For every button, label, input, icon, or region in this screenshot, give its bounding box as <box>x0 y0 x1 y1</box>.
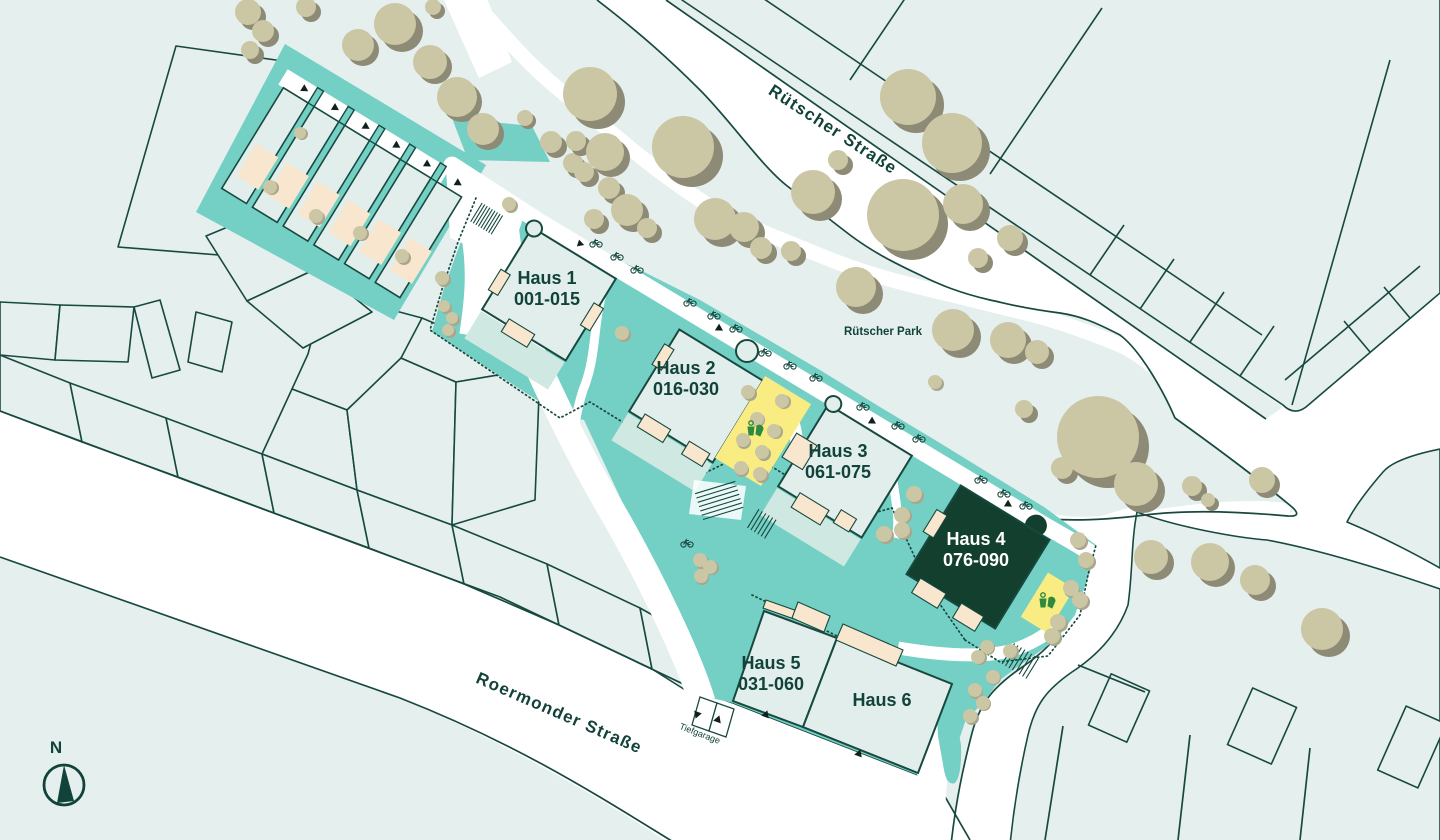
svg-text:Haus 4: Haus 4 <box>946 529 1005 549</box>
svg-text:016-030: 016-030 <box>653 379 719 399</box>
svg-text:076-090: 076-090 <box>943 550 1009 570</box>
svg-text:Rütscher Park: Rütscher Park <box>844 326 923 338</box>
svg-text:Haus 2: Haus 2 <box>656 358 715 378</box>
svg-text:Haus 6: Haus 6 <box>852 690 911 710</box>
svg-text:Haus 3: Haus 3 <box>808 441 867 461</box>
svg-text:031-060: 031-060 <box>738 674 804 694</box>
svg-text:001-015: 001-015 <box>514 289 580 309</box>
svg-text:N: N <box>50 738 62 757</box>
svg-text:Haus 1: Haus 1 <box>517 268 576 288</box>
svg-text:Haus 5: Haus 5 <box>741 653 800 673</box>
svg-text:061-075: 061-075 <box>805 462 871 482</box>
